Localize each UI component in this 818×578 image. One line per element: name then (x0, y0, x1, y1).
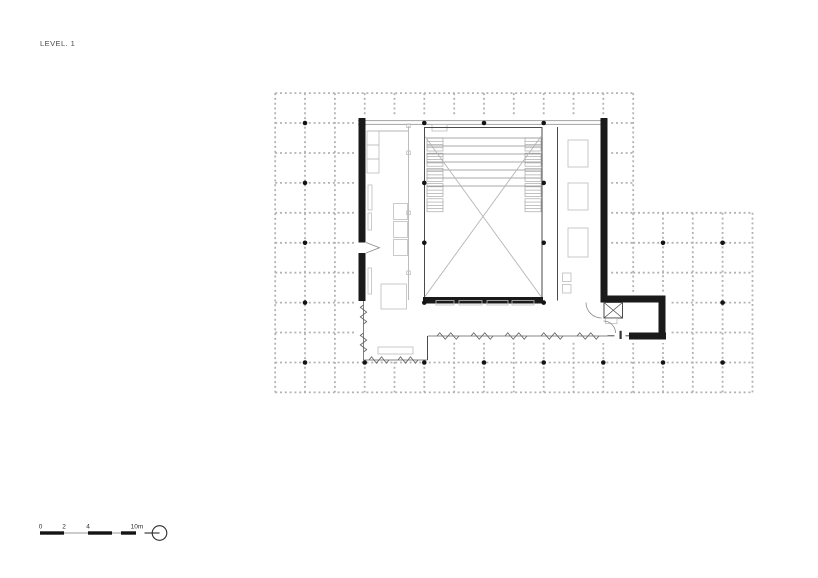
scale-bar-segment (88, 531, 112, 534)
building-floor (356, 116, 670, 362)
scale-bar-segment (40, 531, 64, 534)
floor-plan (275, 93, 752, 392)
north-marker-icon (145, 526, 167, 541)
scale-bar: 0 2 4 10m (39, 524, 144, 535)
scale-label-10m: 10m (131, 524, 144, 531)
drawing-sheet: LEVEL. 1 0 2 4 10m (0, 0, 818, 578)
scale-label-2: 2 (62, 524, 66, 531)
scale-label-4: 4 (86, 524, 90, 531)
floor-plan-canvas: 0 2 4 10m (0, 0, 818, 578)
scale-bar-segment (121, 531, 136, 534)
scale-label-0: 0 (39, 524, 43, 531)
